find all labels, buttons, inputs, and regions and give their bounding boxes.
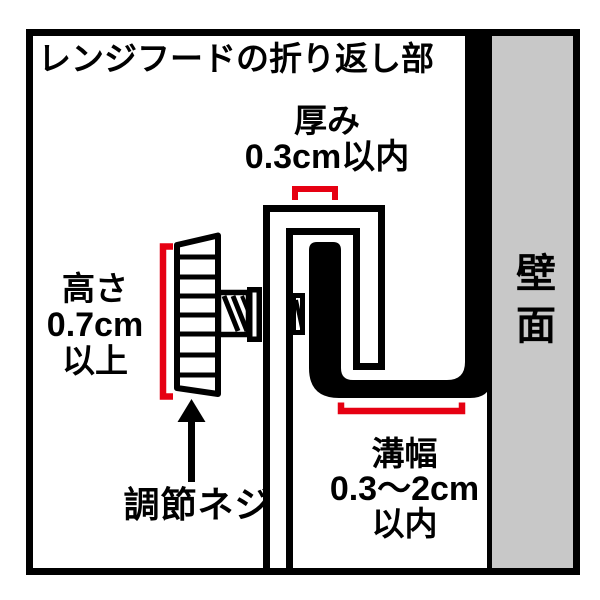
screw-head-knurling [180, 257, 215, 375]
diagram-title: レンジフードの折り返し部 [38, 42, 434, 75]
groove-width-value: 0.3〜2cm [322, 472, 487, 506]
thickness-value: 0.3cm以内 [242, 140, 412, 174]
height-label: 高さ [20, 272, 170, 305]
adjustment-screw-label: 調節ネジ [105, 487, 290, 523]
groove-width-qualifier: 以内 [322, 507, 487, 540]
screw-collar [250, 290, 260, 340]
groove-width-label: 溝幅 [322, 437, 487, 470]
height-qualifier: 以上 [20, 344, 170, 377]
wall-surface-label: 壁面 [512, 252, 552, 356]
thickness-label: 厚み [242, 104, 412, 137]
diagram-canvas: レンジフードの折り返し部 厚み 0.3cm以内 高さ 0.7cm 以上 溝幅 0… [0, 0, 600, 600]
height-value: 0.7cm [20, 308, 170, 342]
